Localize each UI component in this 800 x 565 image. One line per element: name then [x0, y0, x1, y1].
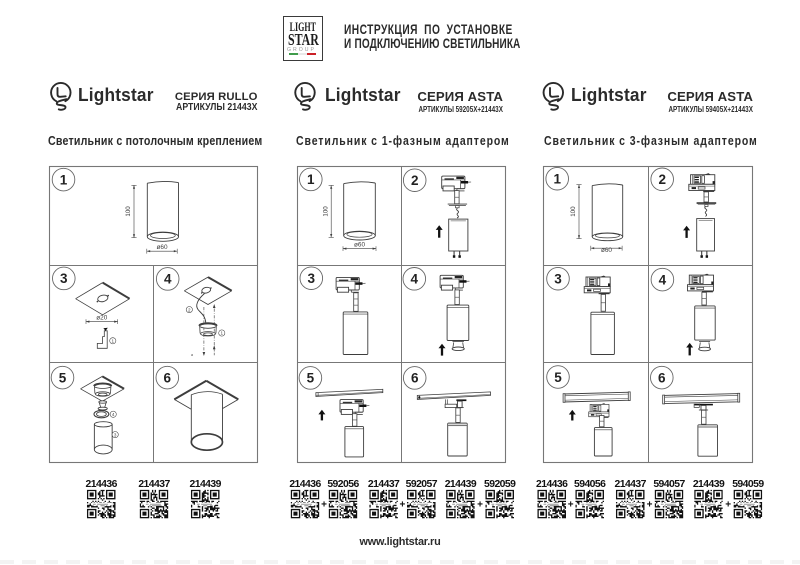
svg-text:214436: 214436: [289, 479, 321, 490]
svg-text:5: 5: [59, 370, 67, 385]
svg-text:3: 3: [308, 271, 316, 286]
svg-text:214437: 214437: [368, 479, 400, 490]
svg-text:1: 1: [553, 172, 561, 187]
svg-text:594059: 594059: [732, 479, 764, 490]
svg-text:5: 5: [554, 370, 562, 385]
svg-text:100: 100: [570, 206, 577, 217]
svg-text:3: 3: [60, 271, 68, 286]
svg-text:214439: 214439: [445, 479, 477, 490]
svg-text:214436: 214436: [86, 479, 118, 490]
svg-text:4: 4: [659, 272, 667, 287]
svg-text:1: 1: [307, 172, 315, 187]
svg-text:592059: 592059: [484, 479, 516, 490]
svg-text:2: 2: [411, 173, 419, 188]
svg-text:214439: 214439: [190, 479, 222, 490]
svg-text:ø20: ø20: [96, 315, 107, 322]
svg-text:3: 3: [554, 272, 562, 287]
svg-text:1: 1: [221, 331, 224, 336]
svg-text:100: 100: [323, 206, 330, 217]
svg-text:214437: 214437: [138, 479, 170, 490]
svg-text:6: 6: [411, 371, 419, 386]
svg-text:592056: 592056: [327, 479, 359, 490]
svg-text:4: 4: [112, 412, 115, 417]
svg-text:2: 2: [188, 307, 191, 312]
svg-text:1: 1: [112, 339, 115, 344]
svg-text:6: 6: [658, 370, 666, 385]
svg-text:ø60: ø60: [156, 244, 167, 251]
svg-text:5: 5: [307, 371, 315, 386]
svg-text:+: +: [725, 500, 731, 511]
svg-text:2: 2: [658, 172, 666, 187]
svg-text:ø60: ø60: [601, 247, 612, 254]
svg-text:4: 4: [164, 272, 172, 287]
svg-text:214437: 214437: [615, 479, 647, 490]
svg-text:6: 6: [164, 370, 172, 385]
svg-text:592057: 592057: [406, 479, 438, 490]
svg-text:ø60: ø60: [354, 241, 365, 248]
svg-text:a: a: [191, 353, 193, 357]
svg-text:+: +: [321, 500, 327, 511]
svg-text:+: +: [399, 500, 405, 511]
svg-text:+: +: [568, 500, 574, 511]
svg-text:3: 3: [114, 432, 117, 437]
svg-text:1: 1: [60, 172, 68, 187]
svg-text:214436: 214436: [536, 479, 568, 490]
svg-text:+: +: [647, 500, 653, 511]
svg-text:214439: 214439: [693, 479, 725, 490]
svg-text:+: +: [477, 500, 483, 511]
svg-text:4: 4: [411, 272, 419, 287]
svg-text:594056: 594056: [574, 479, 606, 490]
svg-text:100: 100: [125, 206, 132, 217]
svg-text:594057: 594057: [653, 479, 685, 490]
